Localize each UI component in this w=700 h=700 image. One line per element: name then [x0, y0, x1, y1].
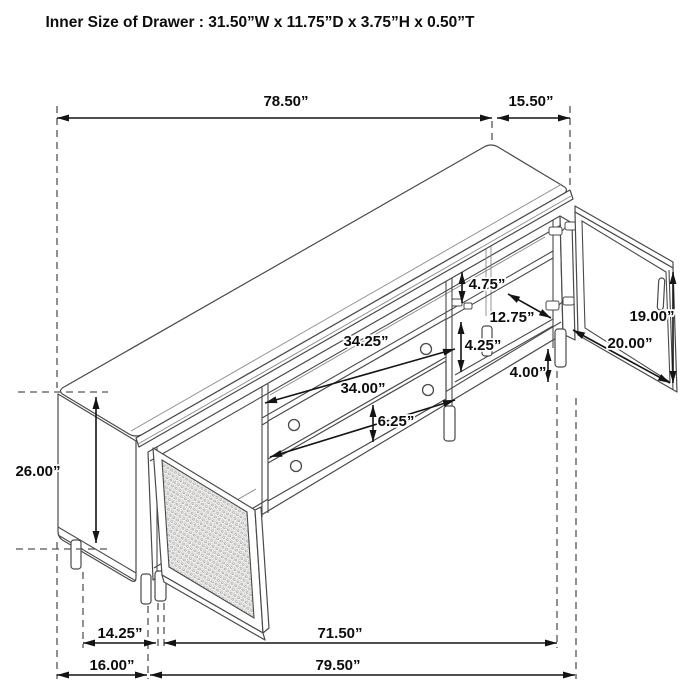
dim-label-overall-base-width: 79.50” [315, 657, 360, 674]
dim-label-overall-top-width: 78.50” [263, 93, 308, 110]
right-door-open[interactable] [575, 206, 677, 392]
leg-center [444, 406, 455, 441]
dimension-overall-base-width: 79.50” [150, 657, 575, 675]
leg-front-right [555, 329, 566, 367]
hinge-arm-icon [549, 227, 562, 235]
dimension-top-depth: 15.50” [497, 93, 570, 118]
page-title: Inner Size of Drawer : 31.50”W x 11.75”D… [45, 14, 475, 31]
dim-label-shelf-opening-width: 34.25” [343, 333, 388, 350]
dim-label-top-depth: 15.50” [508, 93, 553, 110]
dim-label-door-opening-height: 19.00” [629, 308, 674, 325]
dimension-side-leg-spacing: 14.25” [83, 625, 156, 643]
door-handle[interactable] [657, 278, 665, 310]
dim-label-lower-opening-height: 4.25” [465, 337, 502, 354]
hinge-arm-icon [563, 297, 574, 305]
leg-back-left [71, 540, 81, 569]
dim-label-upper-opening-height: 4.75” [469, 276, 506, 293]
dim-label-inner-base-width: 71.50” [317, 625, 362, 642]
dim-label-drawer-face-width: 34.00” [340, 380, 385, 397]
dim-label-side-panel-width: 16.00” [89, 657, 134, 674]
drawer-knob[interactable] [423, 385, 434, 396]
cabinet-right-end-panel [560, 216, 575, 340]
drawer-knob[interactable] [421, 344, 432, 355]
dim-label-leg-height: 4.00” [510, 364, 547, 381]
furniture-dimension-diagram: 78.50” 15.50” 26.00” 4.75” 12.75” 4.25” … [0, 0, 700, 700]
drawer-knob[interactable] [289, 420, 300, 431]
dimension-side-panel-width: 16.00” [57, 657, 147, 675]
dim-label-drawer-face-height: 6.25” [378, 413, 415, 430]
hinge-plate-icon [452, 299, 462, 306]
dimension-overall-top-width: 78.50” [57, 93, 492, 118]
hinge-arm-icon [565, 222, 576, 230]
dim-label-door-opening-width: 20.00” [607, 335, 652, 352]
leg-front-left [141, 574, 151, 604]
dim-label-shelf-depth: 12.75” [489, 309, 534, 326]
diagram-canvas: 78.50” 15.50” 26.00” 4.75” 12.75” 4.25” … [0, 0, 700, 700]
hinge-plate-icon [464, 303, 472, 309]
dim-label-overall-height: 26.00” [15, 463, 60, 480]
drawer-knob[interactable] [291, 461, 302, 472]
dimension-inner-base-width: 71.50” [164, 625, 557, 643]
hinge-arm-icon [546, 301, 559, 310]
dim-label-side-leg-spacing: 14.25” [97, 625, 142, 642]
